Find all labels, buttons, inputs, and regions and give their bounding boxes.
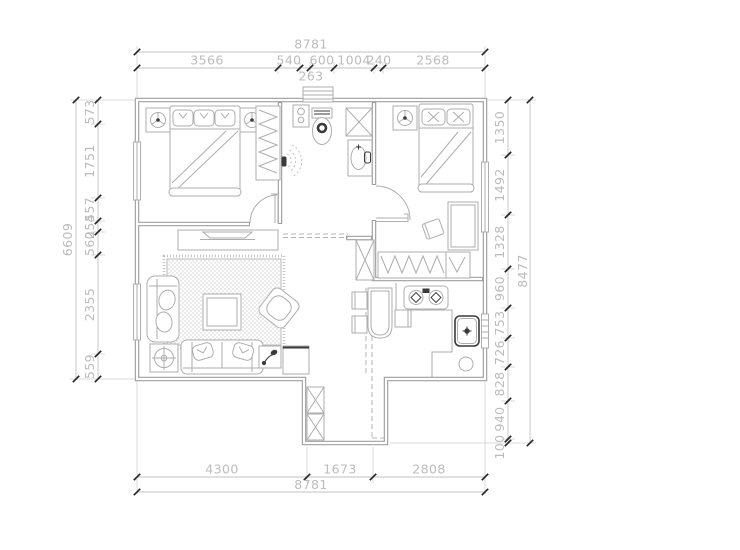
nightstand	[146, 108, 170, 132]
dimensions-left: 573 1751 557 254 560 2355 559 6609	[60, 97, 135, 382]
window-living-left	[134, 284, 141, 340]
kitchen-sink	[455, 316, 479, 346]
dim-label: 1751	[82, 144, 97, 177]
coffee-table	[203, 294, 241, 330]
pillow	[173, 110, 193, 126]
wardrobe	[378, 252, 470, 278]
bathroom	[282, 105, 372, 177]
shower-icon	[282, 145, 302, 177]
door-bedroom2	[376, 186, 410, 222]
pillow	[194, 110, 214, 126]
door-bathroom-sliding	[283, 234, 348, 238]
dining-table	[368, 288, 392, 338]
dim-label: 4300	[205, 462, 238, 477]
dim-label: 1350	[492, 111, 507, 144]
dim-label: 2568	[416, 53, 449, 68]
pillow	[215, 110, 235, 126]
kitchen	[396, 283, 479, 377]
desk-chair	[422, 218, 444, 239]
door-bedroom1	[250, 194, 278, 223]
duct-shaft	[346, 108, 372, 136]
wash-basin	[293, 105, 309, 127]
sofa	[181, 340, 263, 374]
window-bathroom-top	[303, 87, 333, 102]
gas-stove	[404, 286, 448, 309]
dim-label: 2355	[82, 288, 97, 321]
dim-label: 6609	[60, 223, 75, 256]
floor-plan-drawing: 8781 3566 540 600 1004 240 2568 263 4	[0, 0, 740, 550]
duct-shaft	[356, 240, 374, 280]
living-room	[147, 230, 309, 374]
dim-label: 540	[276, 53, 301, 68]
window-bedroom2-right	[482, 162, 489, 232]
pillow	[447, 109, 470, 125]
dim-label: 8477	[515, 254, 530, 287]
dining-chair	[395, 310, 411, 327]
dim-label: 263	[298, 69, 323, 84]
toilet	[312, 108, 332, 145]
dim-label: 753	[492, 310, 507, 335]
dim-label: 960	[492, 276, 507, 301]
dim-label: 559	[82, 354, 97, 379]
dim-label: 940	[492, 406, 507, 431]
chaise-sofa	[147, 276, 179, 342]
desk	[448, 202, 478, 250]
single-bed	[418, 104, 474, 192]
dining-chair	[352, 316, 367, 333]
dim-label: 240	[366, 53, 391, 68]
pillow	[422, 109, 445, 125]
dim-label: 560	[82, 231, 97, 256]
wardrobe	[256, 106, 280, 180]
dim-label: 573	[82, 99, 97, 124]
bedroom-1	[146, 106, 280, 196]
dim-label: 8781	[294, 37, 327, 52]
dim-label: 1328	[492, 225, 507, 258]
floor-drain	[459, 357, 473, 371]
dim-label: 1492	[492, 168, 507, 201]
bathroom-sink	[348, 140, 372, 176]
shoe-cabinet	[307, 387, 324, 440]
nightstand	[393, 106, 417, 130]
window-kitchen-right	[482, 314, 489, 348]
hall-cabinet	[283, 346, 309, 374]
dim-label: 600	[309, 53, 334, 68]
dim-label: 828	[492, 371, 507, 396]
plant-side-table	[150, 344, 178, 372]
dim-label: 8781	[294, 477, 327, 492]
double-bed	[169, 106, 241, 196]
dim-label: 2808	[412, 462, 445, 477]
window-bedroom1-left	[134, 142, 141, 200]
dim-label: 100	[492, 434, 507, 459]
potted-plant-icon	[259, 346, 281, 368]
dim-label: 726	[492, 340, 507, 365]
tv-cabinet	[178, 230, 278, 250]
floor-plan-canvas: 8781 3566 540 600 1004 240 2568 263 4	[0, 0, 740, 550]
dining-chair	[352, 292, 367, 309]
dim-label: 1673	[323, 462, 356, 477]
dim-label: 3566	[190, 53, 223, 68]
